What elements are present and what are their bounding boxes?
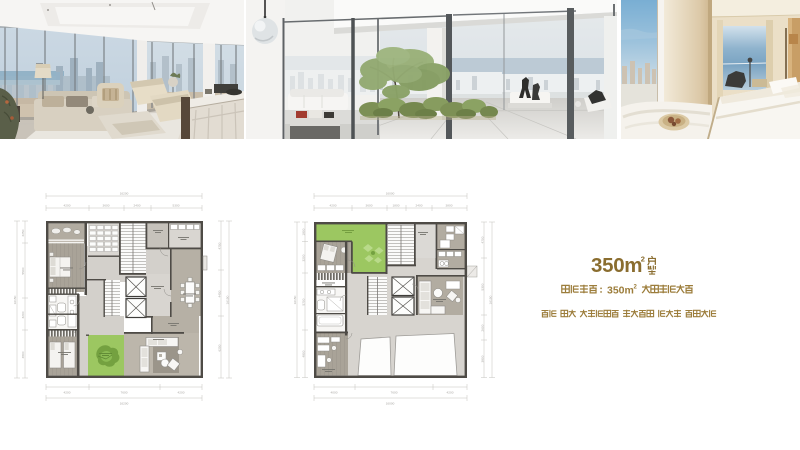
svg-text:350m: 350m: [607, 284, 634, 296]
svg-text:4200: 4200: [178, 390, 185, 394]
svg-text:350m: 350m: [591, 254, 642, 277]
svg-text:1800: 1800: [393, 204, 400, 208]
svg-text:16150: 16150: [13, 295, 17, 304]
svg-text:4800: 4800: [21, 351, 25, 358]
svg-text:1800: 1800: [302, 228, 306, 235]
svg-text:4800: 4800: [302, 350, 306, 357]
svg-text:5500: 5500: [21, 267, 25, 274]
svg-text:16000: 16000: [386, 192, 395, 196]
svg-text:5700: 5700: [302, 298, 306, 305]
svg-text:4000: 4000: [331, 390, 338, 394]
svg-text:3600: 3600: [103, 204, 110, 208]
svg-text:3800: 3800: [446, 204, 453, 208]
svg-text:4200: 4200: [330, 204, 337, 208]
svg-text:4200: 4200: [64, 390, 71, 394]
svg-text:16150: 16150: [293, 295, 297, 304]
svg-text:16200: 16200: [120, 401, 129, 405]
svg-text:7600: 7600: [391, 390, 398, 394]
svg-text:3200: 3200: [302, 254, 306, 261]
svg-text:2400: 2400: [416, 204, 423, 208]
svg-text:7600: 7600: [121, 390, 128, 394]
svg-text:6250: 6250: [218, 344, 222, 351]
svg-text:4200: 4200: [64, 204, 71, 208]
svg-text:2400: 2400: [134, 204, 141, 208]
svg-text:5300: 5300: [173, 204, 180, 208]
svg-text:2: 2: [634, 285, 638, 291]
svg-text:3200: 3200: [21, 311, 25, 318]
svg-text:16200: 16200: [120, 192, 129, 196]
svg-text:16150: 16150: [226, 295, 230, 304]
svg-text:16150: 16150: [489, 295, 493, 304]
svg-text:4200: 4200: [447, 390, 454, 394]
svg-text:2600: 2600: [481, 324, 485, 331]
svg-text:2: 2: [641, 255, 645, 264]
svg-text:3800: 3800: [481, 355, 485, 362]
svg-text:4750: 4750: [218, 242, 222, 249]
svg-text:4700: 4700: [481, 236, 485, 243]
svg-text:16000: 16000: [386, 401, 395, 405]
svg-text:5300: 5300: [481, 283, 485, 290]
svg-text:3600: 3600: [366, 204, 373, 208]
svg-text:2250: 2250: [21, 229, 25, 236]
svg-text:4450: 4450: [218, 290, 222, 297]
